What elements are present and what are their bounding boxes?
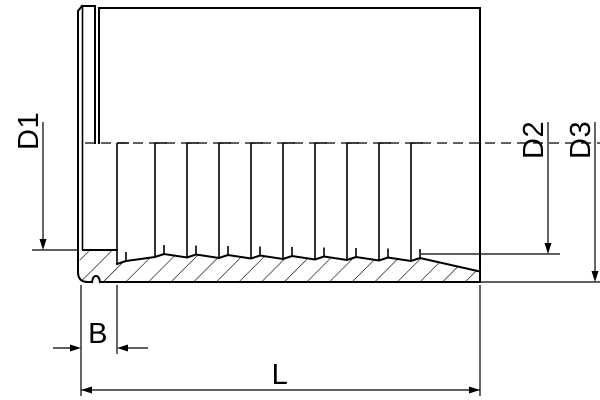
d2-arrowhead (545, 243, 552, 254)
serration-blade-fills (117, 143, 420, 264)
d3-arrowhead (592, 271, 599, 282)
dimension-d1: D1 (13, 112, 79, 250)
b-arrowhead-left (70, 345, 81, 352)
bottom-notch (92, 276, 100, 283)
dimension-b: B (53, 285, 148, 396)
b-arrowhead-right (117, 345, 128, 352)
dimension-label-d2: D2 (518, 121, 550, 159)
collar-groove (95, 6, 99, 143)
d1-arrowhead (40, 239, 47, 250)
dimension-label-l: L (272, 359, 289, 391)
dimension-label-d1: D1 (13, 112, 45, 150)
dimension-label-d3: D3 (565, 121, 597, 159)
l-arrowhead-left (81, 387, 92, 394)
dimension-l: L (81, 285, 480, 396)
dimension-label-b: B (88, 318, 108, 350)
l-arrowhead-right (469, 387, 480, 394)
drawing-canvas: D1 D2 D3 B L (0, 0, 600, 400)
ferrule-technical-drawing: D1 D2 D3 B L (0, 0, 600, 400)
dimension-d2: D2 (421, 121, 560, 254)
